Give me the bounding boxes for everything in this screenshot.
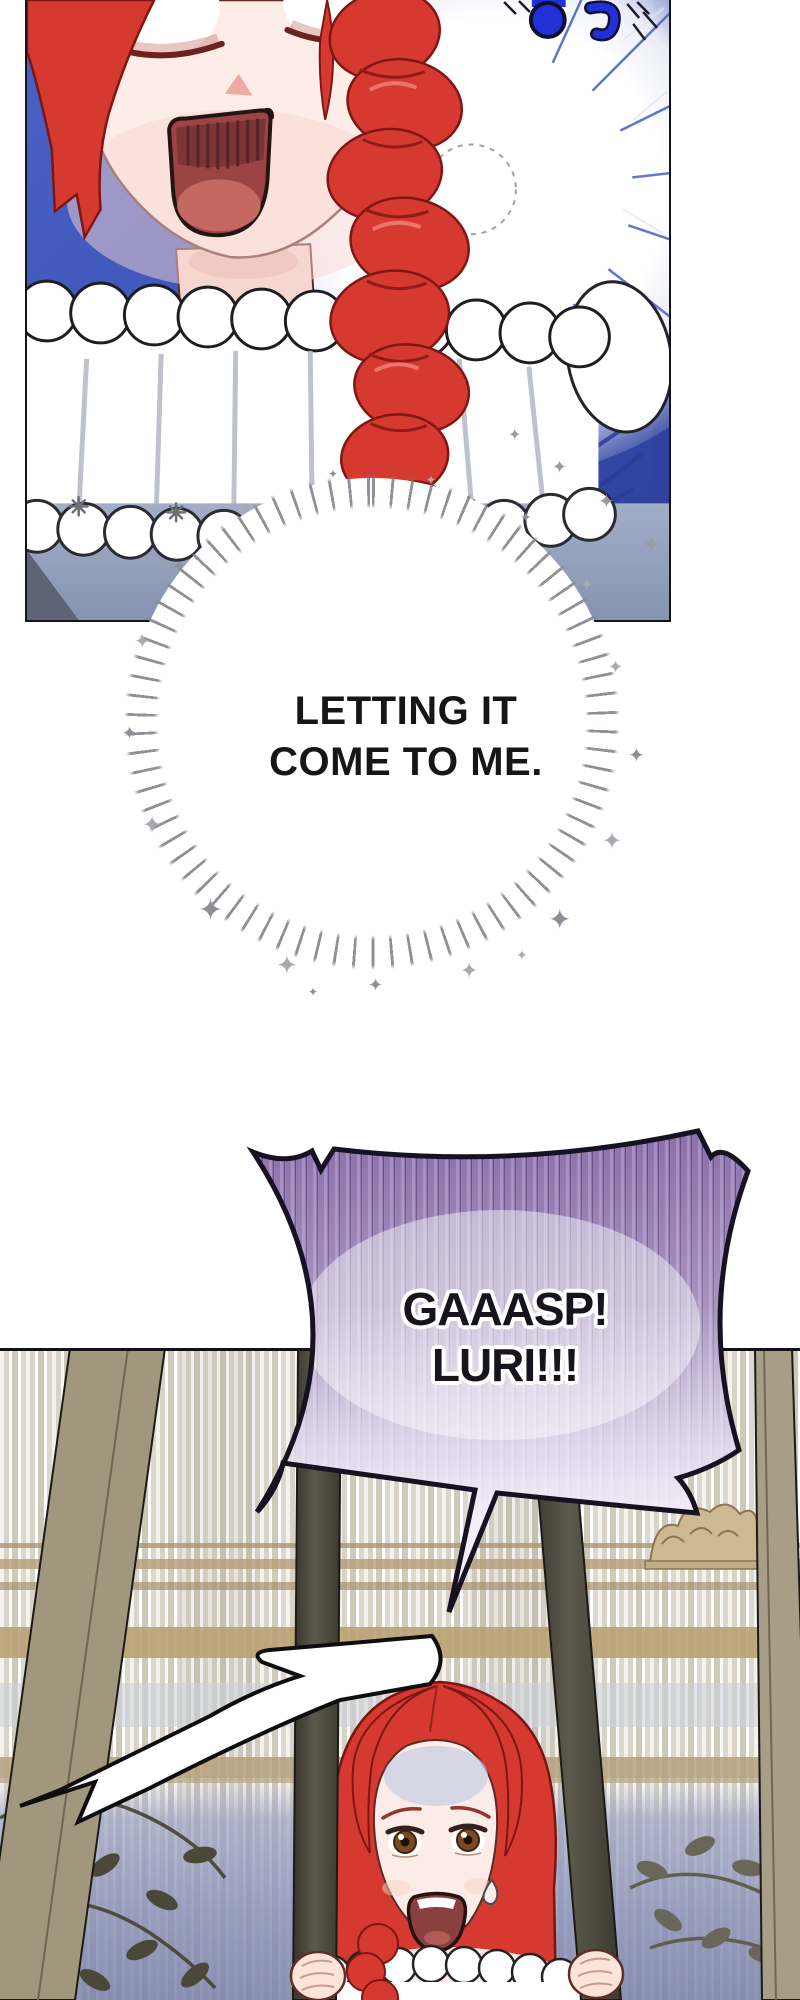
sparkle-icon: ✦ (642, 534, 660, 556)
comic-page: ✦ ✦ ✦ ✦ ✦ ✦ ✦ ✦ ✦ ✦ ✦ ✦ ✦ ✦ ✦ ✦ ✦ ✦ ✦ ✦ … (0, 0, 800, 2000)
sparkle-icon: ✦ (426, 474, 436, 486)
thought-line-2: COME TO ME. (156, 737, 656, 788)
girl-mouth (409, 1894, 466, 1952)
sparkle-icon: ✦ (134, 632, 151, 652)
shout-line-2: LURI!!! (352, 1337, 658, 1393)
thought-line-1: LETTING IT (156, 686, 656, 737)
forehead-dread-shade (384, 1746, 488, 1806)
panel-room-art (0, 1348, 800, 2000)
open-mouth (169, 109, 272, 235)
sparkle-icon: ✦ (198, 896, 223, 926)
sparkle-icon: ✦ (548, 906, 571, 934)
sparkle-icon: ✦ (602, 830, 622, 854)
shout-line-1: GAAASP! (352, 1281, 658, 1337)
shout-balloon-text: GAAASP! LURI!!! (352, 1281, 658, 1393)
sparkle-icon: ✦ (508, 428, 521, 444)
sparkle-icon: ✦ (516, 948, 528, 962)
sparkle-icon: ✦ (368, 976, 383, 994)
sparkle-icon: ✦ (580, 578, 593, 594)
sparkle-icon: ✦ (142, 814, 162, 838)
sparkle-icon: ✦ (552, 458, 567, 476)
sparkle-icon: ✦ (608, 658, 623, 676)
cage-bar-tan-right (755, 1348, 800, 2000)
sparkle-icon: ✦ (240, 500, 252, 514)
sparkle-icon: ✦ (276, 952, 298, 978)
sparkle-icon: ✦ (122, 724, 137, 742)
sparkle-icon: ✦ (328, 468, 338, 480)
thought-bubble-text: LETTING IT COME TO ME. (156, 686, 656, 788)
panel-barred-room (0, 1348, 800, 2000)
sparkle-icon: ✦ (172, 560, 185, 576)
sparkle-icon: ✦ (308, 986, 318, 998)
sparkle-icon: ✦ (460, 960, 478, 982)
sparkle-icon: ✦ (598, 492, 615, 512)
sparkle-icon: ✦ (520, 510, 532, 524)
